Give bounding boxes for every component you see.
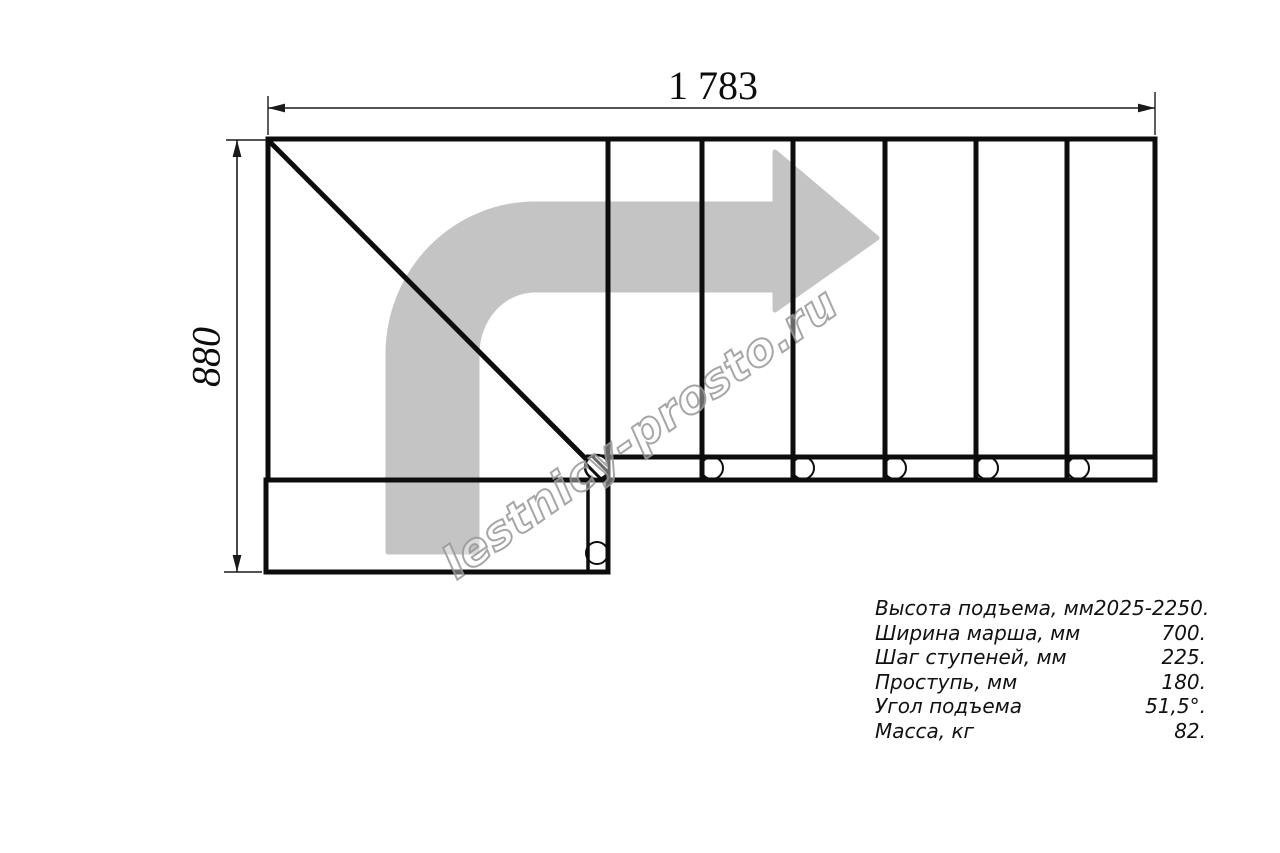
turn-right-arrow-icon xyxy=(388,152,877,552)
spec-row-mass: Масса, кг 82. xyxy=(875,719,1206,744)
dim-arrow-left xyxy=(268,104,285,113)
width-dimension-label: 1 783 xyxy=(638,62,788,109)
spec-label: Шаг ступеней, мм xyxy=(875,645,1067,670)
spec-label: Угол подъема xyxy=(875,694,1022,719)
dim-arrow-right xyxy=(1138,104,1155,113)
spec-value: 700. xyxy=(1161,621,1206,646)
spec-row-step-pitch: Шаг ступеней, мм 225. xyxy=(875,645,1206,670)
spec-row-height: Высота подъема, мм 2025-2250. xyxy=(875,596,1206,621)
dim-arrow-top xyxy=(233,140,242,157)
spec-value: 51,5°. xyxy=(1145,694,1206,719)
spec-value: 82. xyxy=(1174,719,1206,744)
spec-label: Проступь, мм xyxy=(875,670,1017,695)
spec-row-angle: Угол подъема 51,5°. xyxy=(875,694,1206,719)
spec-label: Высота подъема, мм xyxy=(875,596,1094,621)
spec-value: 2025-2250. xyxy=(1094,596,1209,621)
spec-label: Ширина марша, мм xyxy=(875,621,1080,646)
spec-row-flight-width: Ширина марша, мм 700. xyxy=(875,621,1206,646)
dim-arrow-bottom xyxy=(233,555,242,572)
fastener-holes xyxy=(586,457,1089,564)
dimension-depth xyxy=(224,140,266,572)
specs-table: Высота подъема, мм 2025-2250. Ширина мар… xyxy=(875,596,1206,743)
staircase-drawing-page: 1 783 880 lestnicy-prosto.ru Высота подъ… xyxy=(0,0,1280,853)
depth-dimension-label: 880 xyxy=(183,327,230,387)
spec-label: Масса, кг xyxy=(875,719,974,744)
spec-row-tread: Проступь, мм 180. xyxy=(875,670,1206,695)
spec-value: 225. xyxy=(1161,645,1206,670)
spec-value: 180. xyxy=(1161,670,1206,695)
